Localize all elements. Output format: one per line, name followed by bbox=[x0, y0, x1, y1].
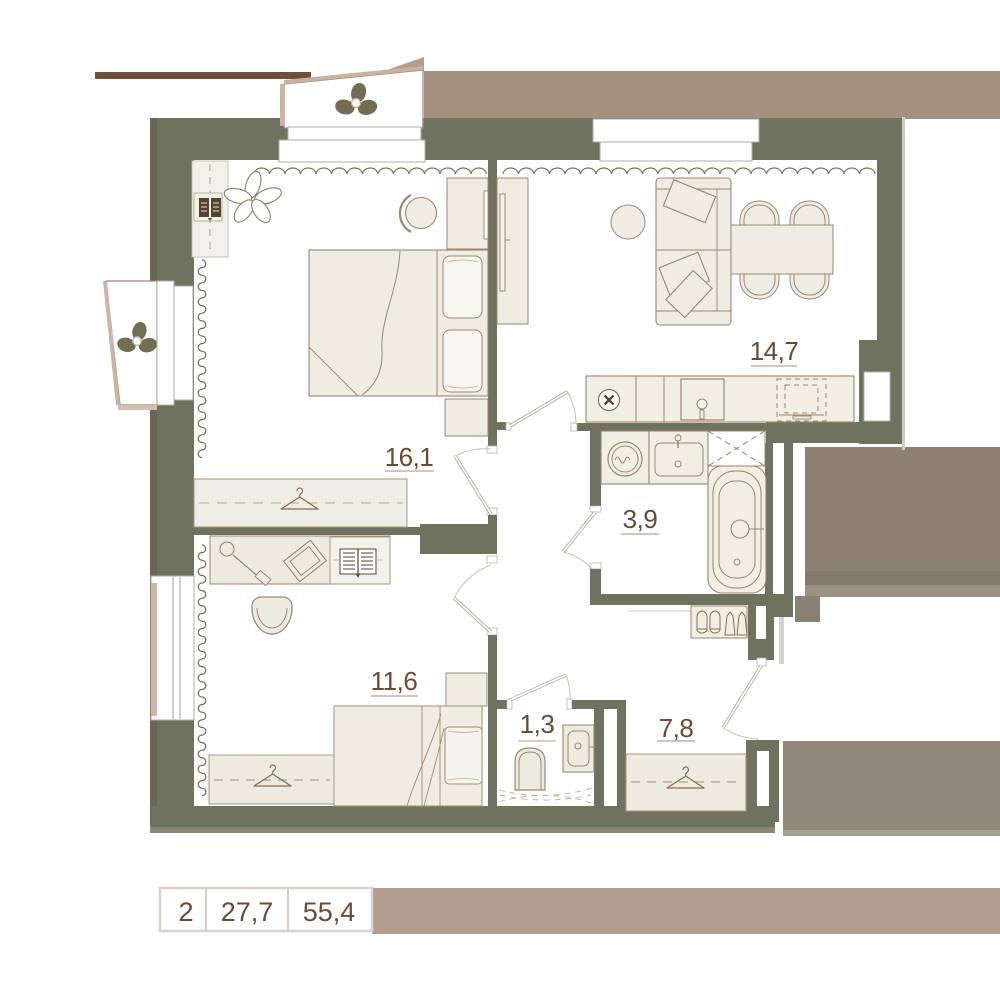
svg-text:16,1: 16,1 bbox=[385, 442, 434, 472]
svg-text:14,7: 14,7 bbox=[750, 336, 799, 366]
svg-text:11,6: 11,6 bbox=[371, 666, 418, 696]
svg-text:2: 2 bbox=[178, 897, 193, 927]
svg-text:1,3: 1,3 bbox=[520, 709, 555, 739]
svg-text:3,9: 3,9 bbox=[623, 504, 658, 534]
svg-text:7,8: 7,8 bbox=[659, 713, 694, 743]
svg-text:27,7: 27,7 bbox=[221, 897, 274, 927]
svg-text:55,4: 55,4 bbox=[303, 897, 356, 927]
